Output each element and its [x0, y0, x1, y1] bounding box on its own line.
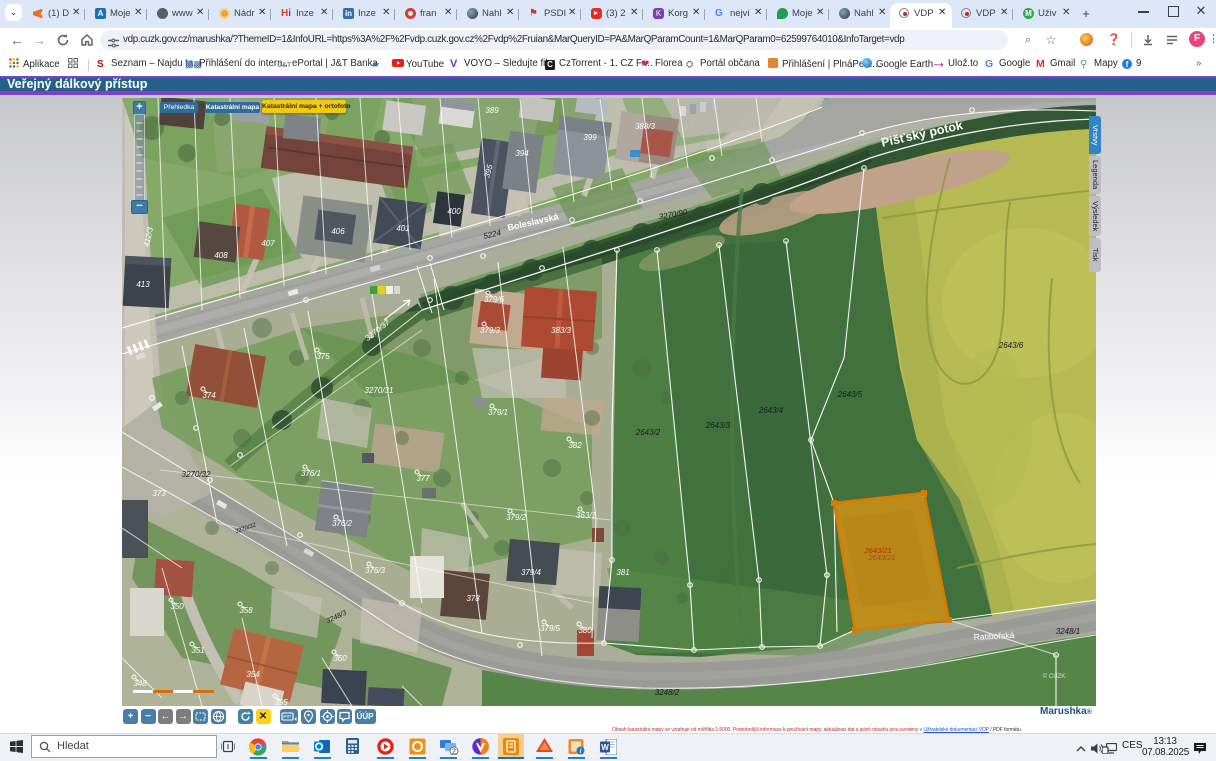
- svg-text:394: 394: [515, 149, 529, 158]
- svg-text:379/5: 379/5: [540, 624, 561, 633]
- svg-text:408: 408: [214, 251, 228, 260]
- svg-text:406: 406: [331, 227, 345, 236]
- svg-text:383/3: 383/3: [551, 326, 572, 335]
- svg-text:348: 348: [133, 679, 147, 688]
- svg-text:376/3: 376/3: [365, 566, 386, 575]
- svg-text:388/3: 388/3: [635, 122, 656, 131]
- svg-text:379/2: 379/2: [506, 513, 527, 522]
- svg-text:360: 360: [333, 654, 347, 663]
- svg-text:3248/2: 3248/2: [655, 688, 680, 697]
- svg-text:W: W: [601, 743, 609, 752]
- svg-text:2643/6: 2643/6: [998, 341, 1024, 350]
- svg-text:389: 389: [485, 106, 499, 115]
- svg-text:i: i: [580, 748, 582, 755]
- svg-text:2643/5: 2643/5: [837, 390, 863, 399]
- svg-text:376/2: 376/2: [332, 519, 353, 528]
- svg-text:© ČÚZK: © ČÚZK: [1043, 673, 1065, 680]
- svg-text:379/4: 379/4: [521, 568, 542, 577]
- svg-text:377: 377: [416, 474, 430, 483]
- svg-text:399: 399: [583, 133, 597, 142]
- svg-text:380: 380: [578, 626, 592, 635]
- svg-text:379/3: 379/3: [480, 326, 501, 335]
- svg-text:376/1: 376/1: [301, 469, 321, 478]
- svg-text:355: 355: [274, 698, 288, 706]
- svg-text:373: 373: [152, 489, 166, 498]
- svg-text:379/6: 379/6: [484, 295, 505, 304]
- svg-text:2643/4: 2643/4: [758, 406, 784, 415]
- svg-text:363/1: 363/1: [576, 511, 596, 520]
- svg-text:3248/1: 3248/1: [1056, 627, 1080, 636]
- svg-text:382: 382: [568, 441, 582, 450]
- svg-text:351: 351: [191, 646, 204, 655]
- svg-text:375: 375: [316, 352, 330, 361]
- svg-text:401: 401: [396, 224, 409, 233]
- svg-text:2643/21: 2643/21: [867, 553, 895, 562]
- svg-text:358: 358: [239, 606, 253, 615]
- svg-text:2643/3: 2643/3: [705, 421, 731, 430]
- svg-text:350: 350: [170, 602, 184, 611]
- svg-text:2643/2: 2643/2: [635, 428, 661, 437]
- svg-text:Ratibořská: Ratibořská: [973, 630, 1014, 642]
- svg-text:413: 413: [136, 280, 150, 289]
- svg-text:2: 2: [452, 749, 456, 755]
- svg-text:407: 407: [261, 239, 275, 248]
- svg-text:379/1: 379/1: [488, 408, 508, 417]
- svg-text:400: 400: [447, 207, 461, 216]
- svg-text:3270/31: 3270/31: [365, 386, 394, 395]
- svg-text:378: 378: [466, 594, 480, 603]
- svg-text:381: 381: [616, 568, 629, 577]
- svg-text:3270/32: 3270/32: [182, 470, 211, 479]
- svg-text:374: 374: [202, 391, 216, 400]
- svg-text:354: 354: [246, 670, 260, 679]
